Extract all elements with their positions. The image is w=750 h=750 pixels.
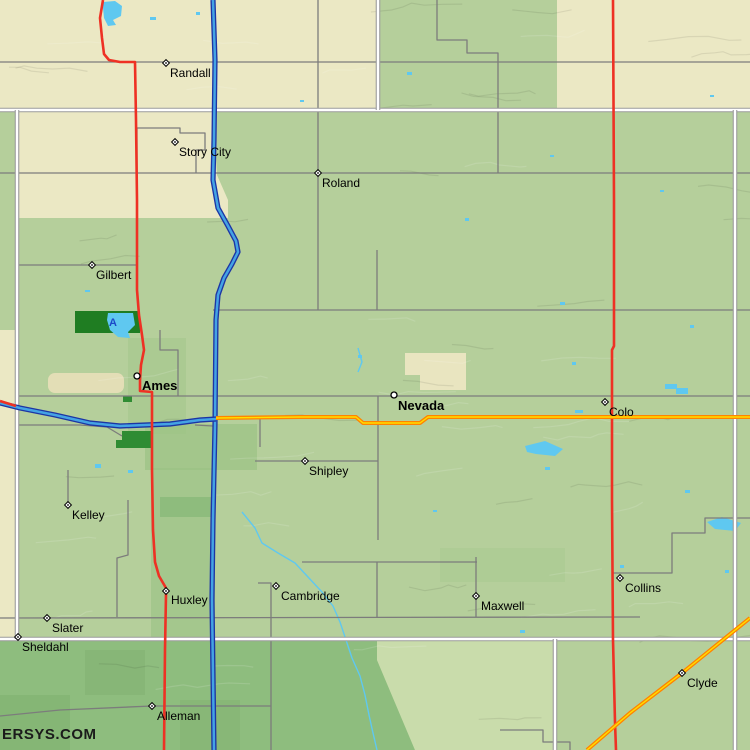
pond: [433, 510, 437, 512]
town-label-randall: Randall: [170, 66, 211, 80]
town-label-alleman: Alleman: [157, 709, 200, 723]
pond: [128, 470, 133, 473]
town-label-nevada: Nevada: [398, 398, 445, 413]
polk-dark-blob-2: [85, 650, 145, 695]
town-marker-dot-maxwell: [475, 595, 477, 597]
pond: [520, 630, 525, 633]
town-label-kelley: Kelley: [72, 508, 105, 522]
town-marker-dot-kelley: [67, 504, 69, 506]
park-dot-ames: [123, 396, 132, 402]
town-marker-dot-roland: [317, 172, 319, 174]
ballard-corridor-green: [151, 468, 215, 640]
pond: [407, 72, 412, 75]
cambridge-east-green: [440, 548, 565, 582]
north-tan-east: [557, 0, 750, 110]
town-label-ames: Ames: [142, 378, 177, 393]
town-marker-dot-cambridge: [275, 585, 277, 587]
pond: [690, 325, 694, 328]
pond: [572, 362, 576, 365]
town-label-clyde: Clyde: [687, 676, 718, 690]
polk-dark-blob-3: [180, 700, 240, 750]
town-label-huxley: Huxley: [171, 593, 208, 607]
pond: [465, 218, 469, 221]
pond: [660, 190, 664, 192]
town-label-slater: Slater: [52, 621, 83, 635]
town-label-cambridge: Cambridge: [281, 589, 340, 603]
pond-east-1: [665, 384, 677, 389]
pond-east-2: [676, 388, 688, 394]
county-road-map: ARandallStory CityRolandGilbertAmesNevad…: [0, 0, 750, 750]
town-label-colo: Colo: [609, 405, 634, 419]
town-label-collins: Collins: [625, 581, 661, 595]
pond: [545, 467, 550, 470]
pond: [620, 565, 624, 568]
pond: [85, 290, 90, 292]
pond: [95, 464, 101, 468]
pond: [725, 570, 729, 573]
watermark: ERSYS.COM: [2, 726, 97, 743]
town-marker-dot-gilbert: [91, 264, 93, 266]
town-marker-dot-alleman: [151, 705, 153, 707]
town-marker-dot-collins: [619, 577, 621, 579]
town-marker-dot-huxley: [165, 590, 167, 592]
town-marker-dot-clyde: [681, 672, 683, 674]
park-south-ames-2: [116, 440, 128, 448]
pond: [196, 12, 200, 15]
pond: [575, 410, 583, 413]
town-marker-dot-colo: [604, 401, 606, 403]
huxley-north-green: [160, 497, 212, 517]
lake-poi-icon: A: [109, 317, 117, 329]
city-marker-nevada: [391, 392, 397, 398]
town-marker-dot-randall: [165, 62, 167, 64]
west-tan-strip: [0, 330, 17, 638]
city-marker-ames: [134, 373, 140, 379]
pond: [710, 95, 714, 97]
pond: [150, 17, 156, 20]
town-label-gilbert: Gilbert: [96, 268, 132, 282]
pond: [560, 302, 565, 305]
town-label-sheldahl: Sheldahl: [22, 640, 69, 654]
town-label-shipley: Shipley: [309, 464, 348, 478]
town-marker-dot-slater: [46, 617, 48, 619]
town-marker-dot-sheldahl: [17, 636, 19, 638]
pond: [550, 155, 554, 157]
town-label-story-city: Story City: [179, 145, 231, 159]
beige-patch-west-ames: [48, 373, 124, 393]
map-viewport: ARandallStory CityRolandGilbertAmesNevad…: [0, 0, 750, 750]
town-marker-dot-story-city: [174, 141, 176, 143]
town-label-maxwell: Maxwell: [481, 599, 524, 613]
town-label-roland: Roland: [322, 176, 360, 190]
ames-se-green: [145, 424, 257, 470]
north-tan-west: [0, 0, 378, 110]
town-marker-dot-shipley: [304, 460, 306, 462]
pond: [300, 100, 304, 102]
pond: [685, 490, 690, 493]
